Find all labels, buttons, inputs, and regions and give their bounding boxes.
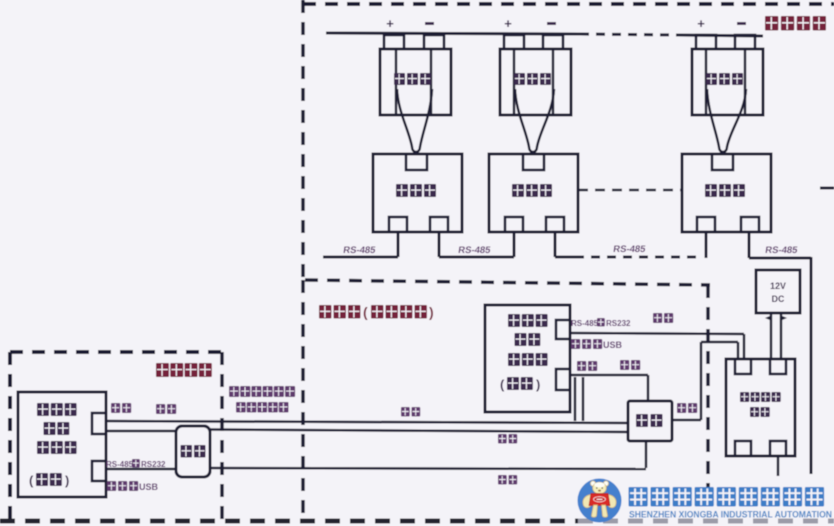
- svg-text:RS-485: RS-485: [342, 245, 376, 256]
- svg-text:+: +: [386, 16, 394, 31]
- svg-text:12V: 12V: [770, 281, 786, 291]
- svg-text:RS-485: RS-485: [106, 460, 134, 469]
- svg-text:(: (: [29, 473, 34, 488]
- svg-text:RS-485: RS-485: [457, 245, 491, 256]
- svg-text:RS-485: RS-485: [764, 245, 798, 256]
- svg-text:SHENZHEN XIONGBA INDUSTRIAL AU: SHENZHEN XIONGBA INDUSTRIAL AUTOMATION: [629, 510, 832, 521]
- svg-text:RS-485: RS-485: [571, 319, 599, 328]
- svg-text:+: +: [504, 16, 512, 31]
- svg-text:): ): [429, 304, 434, 320]
- svg-text:USB: USB: [139, 482, 159, 492]
- svg-text:RS232: RS232: [606, 319, 631, 328]
- svg-text:): ): [65, 473, 69, 488]
- svg-text:RS-485: RS-485: [612, 244, 646, 255]
- svg-text:RS232: RS232: [141, 460, 166, 469]
- svg-text:(: (: [500, 377, 505, 392]
- svg-text:DC: DC: [772, 294, 785, 304]
- svg-text:(: (: [363, 304, 368, 320]
- svg-text:+: +: [697, 16, 705, 31]
- svg-text:USB: USB: [603, 340, 623, 350]
- svg-text:): ): [536, 377, 540, 392]
